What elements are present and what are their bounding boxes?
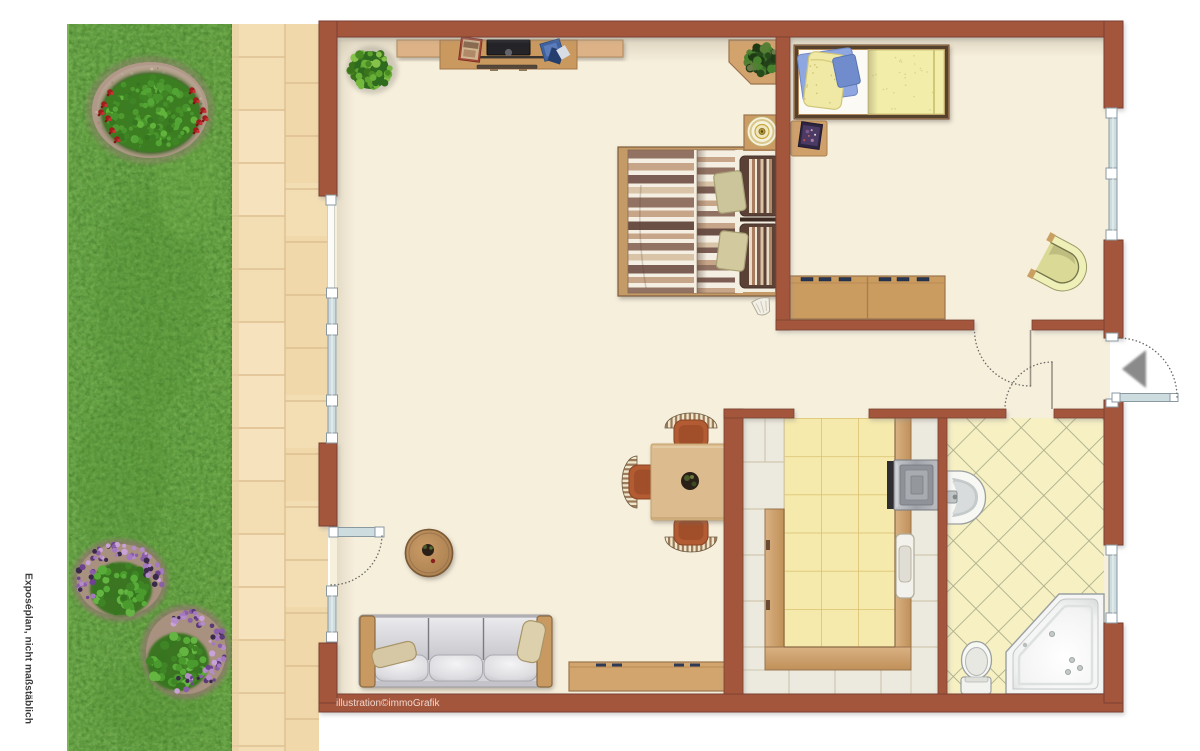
- svg-text:illustration©immoGrafik: illustration©immoGrafik: [336, 698, 441, 709]
- svg-text:Exposéplan, nicht maßstäblich: Exposéplan, nicht maßstäblich: [23, 573, 34, 724]
